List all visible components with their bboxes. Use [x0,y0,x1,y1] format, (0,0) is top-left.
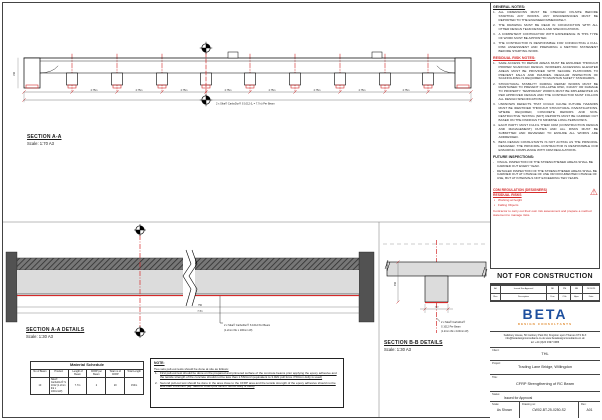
note-item: First pull-out test should be done on th… [154,372,340,380]
general-notes-list: ALL DIMENSIONS MUST BE CHECKED ON-SITE B… [493,11,598,54]
project-field: Project: Trading Lane Bridge, Willingdon [490,360,600,374]
residual-risk-title: RESIDUAL RISK NOTES: [493,56,598,61]
scale-field: Scale: As Shown [490,402,520,418]
rev-field: Rev: A01 [579,402,600,418]
section-cut-marker-top [134,224,146,236]
note-title: NOTE: [154,361,340,365]
cfrp-annotation: 2 x Sika® CarboDur® [441,321,465,324]
svg-text:2.75m: 2.75m [269,89,276,92]
section-cut-marker-bottom [134,326,146,338]
material-schedule-row: 10 Sika® CarboDur® S 1012 (1.2mm thk x 1… [31,377,144,394]
future-inspections-list: VISUAL INSPECTION OF THE STRENGTHENED AR… [493,161,598,182]
svg-text:(1.2mm thk x 100mm W): (1.2mm thk x 100mm W) [224,328,253,332]
general-note: THE CONTRACTOR IS RESPONSIBLE FOR CONDUC… [493,42,598,54]
svg-text:450: 450 [394,281,397,286]
client-field: Client: THL [490,347,600,360]
section-bb-details-scale: Scale: 1:30 A3 [384,347,411,352]
drawing-no-field: Drawing no: CW02-BT-25-0250-S2 [520,402,579,418]
revision-table: A0 Issued For Approval NK PM RB 24/10/25… [490,284,600,301]
cfrp-elevation-label: 2 x Sika® CarboDur® S 1012 (L = 7.7m) Pe… [216,102,275,106]
general-note: ALL DIMENSIONS MUST BE CHECKED ON-SITE B… [493,11,598,23]
section-aa-elevation: 2.75m 2.75m 2.75m 2.75m 2.75m 2.75m 2.75… [13,42,473,106]
note-box: NOTE: Two sets pull-out tests should be … [150,358,344,408]
residual-risk-note: SAFE ACCESS TO REPAIR AREAS MUST BE ENSU… [493,62,598,81]
cdm-bullet: Falling Objects [493,204,598,208]
svg-text:2.75m: 2.75m [136,89,143,92]
svg-text:2.75m: 2.75m [359,89,366,92]
cdm-title: CDM REGULATION (DESIGNERS) RESIDUAL RISK… [493,188,563,197]
revision-entry-row: A0 Issued For Approval NK PM RB 24/10/25 [491,286,600,294]
cdm-note: Contractor to carry out their own risk a… [493,210,598,218]
residual-risk-list: SAFE ACCESS TO REPAIR AREAS MUST BE ENSU… [493,62,598,153]
drawing-no-value: CW02-BT-25-0250-S2 [522,408,576,412]
drawing-sheet: 2.75m 2.75m 2.75m 2.75m 2.75m 2.75m 2.75… [0,0,602,420]
company-contacts: info@betadesignconsultants.co.uk www.bet… [490,337,600,341]
section-aa-label: SECTION A-A [27,134,62,140]
not-for-construction-stamp: NOT FOR CONSTRUCTION [490,268,600,284]
svg-text:7.7m: 7.7m [197,310,202,313]
scale-drawingno-rev-row: Scale: As Shown Drawing no: CW02-BT-25-0… [490,401,600,418]
residual-risk-note: BETA DESIGN CONSULTANTS IS NOT ACTING AS… [493,141,598,153]
general-note: THE DRAWING MUST BE READ IN CONJUNCTION … [493,24,598,32]
future-inspection-item: VISUAL INSPECTION OF THE STRENGTHENED AR… [493,161,598,169]
status-value: Issued for Approval [492,396,598,400]
general-notes-title: GENERAL NOTES: [493,5,598,10]
residual-risk-note: STRUCTURAL STABILITY DURING REPAIR WORKS… [493,83,598,102]
future-inspections-title: FUTURE INSPECTIONS: [493,155,598,160]
svg-text:100: 100 [435,307,439,309]
company-tel: tel: +44 (0)20 3397 0986 [490,341,600,345]
drawing-canvas: 2.75m 2.75m 2.75m 2.75m 2.75m 2.75m 2.75… [0,0,491,418]
company-address-block: Salisbury House, 50 Canbury Park Rd, Kin… [490,331,600,347]
svg-text:S 1012 Per Beam: S 1012 Per Beam [441,326,461,329]
section-bb-details: 100 450 2 x Sika® CarboDur® S 1012 Per B… [383,240,488,333]
svg-text:2.75m: 2.75m [91,89,98,92]
svg-text:2.75m: 2.75m [225,89,232,92]
cdm-residual-risks: ⚠ CDM REGULATION (DESIGNERS) RESIDUAL RI… [493,188,598,218]
svg-text:2.75m: 2.75m [403,89,410,92]
general-note: A COMPETENT CONTRACTOR WITH EXPERIENCE I… [493,33,598,41]
future-inspection-item: DETAILED INSPECTION OF THE STRENGTHENED … [493,170,598,182]
material-schedule-title: Material Schedule [31,362,144,370]
section-aa-details-scale: Scale: 1:30 A3 [26,334,53,339]
drawing-title-field: Title: CFRP Strengthening of RC Beam [490,374,600,391]
section-aa-details-label: SECTION A-A DETAILS [26,327,84,333]
warning-icon: ⚠ [590,188,598,197]
svg-text:2.75m: 2.75m [181,89,188,92]
section-cut-marker-top [200,42,212,54]
cfrp-annotation: 2 x Sika® CarboDur® S 1012 Per Beam [224,323,270,327]
notes-panel: GENERAL NOTES: ALL DIMENSIONS MUST BE CH… [493,5,598,218]
svg-text:750: 750 [198,304,203,307]
svg-text:2.75m: 2.75m [314,89,321,92]
company-logo-tagline: DESIGN CONSULTANTS [518,322,572,326]
note-intro: Two sets pull-out tests should be done a… [154,367,340,371]
material-schedule-table: Material Schedule No of Beam Product Len… [30,361,144,395]
svg-text:(1.2mm thk x 100mm W): (1.2mm thk x 100mm W) [441,330,469,333]
residual-risk-note: UNKNOWN DEFECTS THAT COULD CAUSE FUTURE … [493,103,598,122]
section-bb-details-label: SECTION B-B DETAILS [384,340,443,346]
rev-value: A01 [581,408,598,412]
project-value: Trading Lane Bridge, Willingdon [492,365,598,369]
status-field: Status: Issued for Approval [490,391,600,401]
company-logo: BETA DESIGN CONSULTANTS [490,301,600,331]
svg-text:150: 150 [13,71,16,76]
drawing-title-value: CFRP Strengthening of RC Beam [492,381,598,386]
scale-value: As Shown [492,408,517,412]
section-aa-details: 750 7.7m 2 x Sika® CarboDur® S 1012 Per … [6,224,374,338]
company-logo-name: BETA [522,307,567,321]
residual-risk-note: EACH PARTY MUST FULFIL THEIR CDM (CONSTR… [493,124,598,140]
client-value: THL [492,352,598,356]
note-item: Second pull-out test should be done in t… [154,382,340,390]
section-aa-scale: Scale: 1:70 A3 [27,141,54,146]
revision-header-row: Rev Description Drw Chk Aprv Date [491,293,600,301]
